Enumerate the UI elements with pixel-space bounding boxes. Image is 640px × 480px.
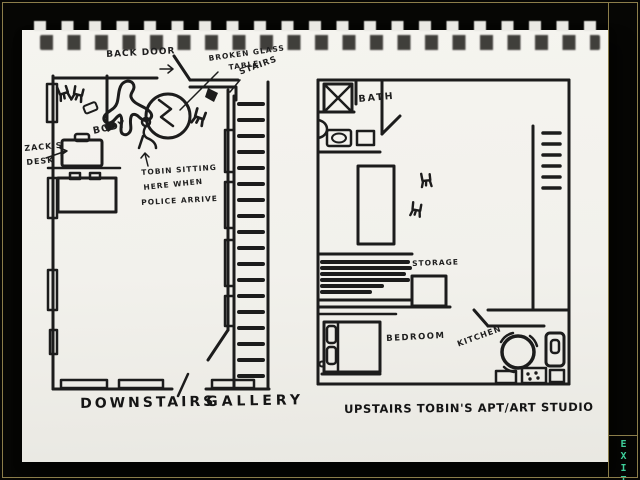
photo-background: BACK DOOR BROKEN GLASS TABLE STAIRS ZACK… <box>6 6 603 474</box>
studio-chairs <box>410 173 431 217</box>
exit-button-label: EXIT <box>618 439 629 480</box>
upper-stairwell-treads <box>543 133 560 188</box>
broken-glass-table <box>146 72 218 138</box>
exit-button[interactable]: EXIT <box>609 435 638 478</box>
kitchen <box>474 310 568 383</box>
bed <box>320 322 381 374</box>
caption-downstairs: DOWNSTAIRS <box>80 394 216 412</box>
notebook-page: BACK DOOR BROKEN GLASS TABLE STAIRS ZACK… <box>22 30 608 462</box>
work-table <box>358 166 394 244</box>
caption-gallery: GALLERY <box>206 392 304 410</box>
caption-upstairs: UPSTAIRS TOBIN'S APT/ART STUDIO <box>344 400 594 416</box>
tobin-sitting-figure <box>139 118 156 166</box>
storage-closet <box>412 276 446 306</box>
stairs-treads <box>239 104 263 376</box>
right-sidebar: EXIT <box>608 2 638 478</box>
downstairs-plan <box>46 56 269 396</box>
game-screen: BACK DOOR BROKEN GLASS TABLE STAIRS ZACK… <box>0 0 640 480</box>
label-storage: STORAGE <box>412 257 459 268</box>
